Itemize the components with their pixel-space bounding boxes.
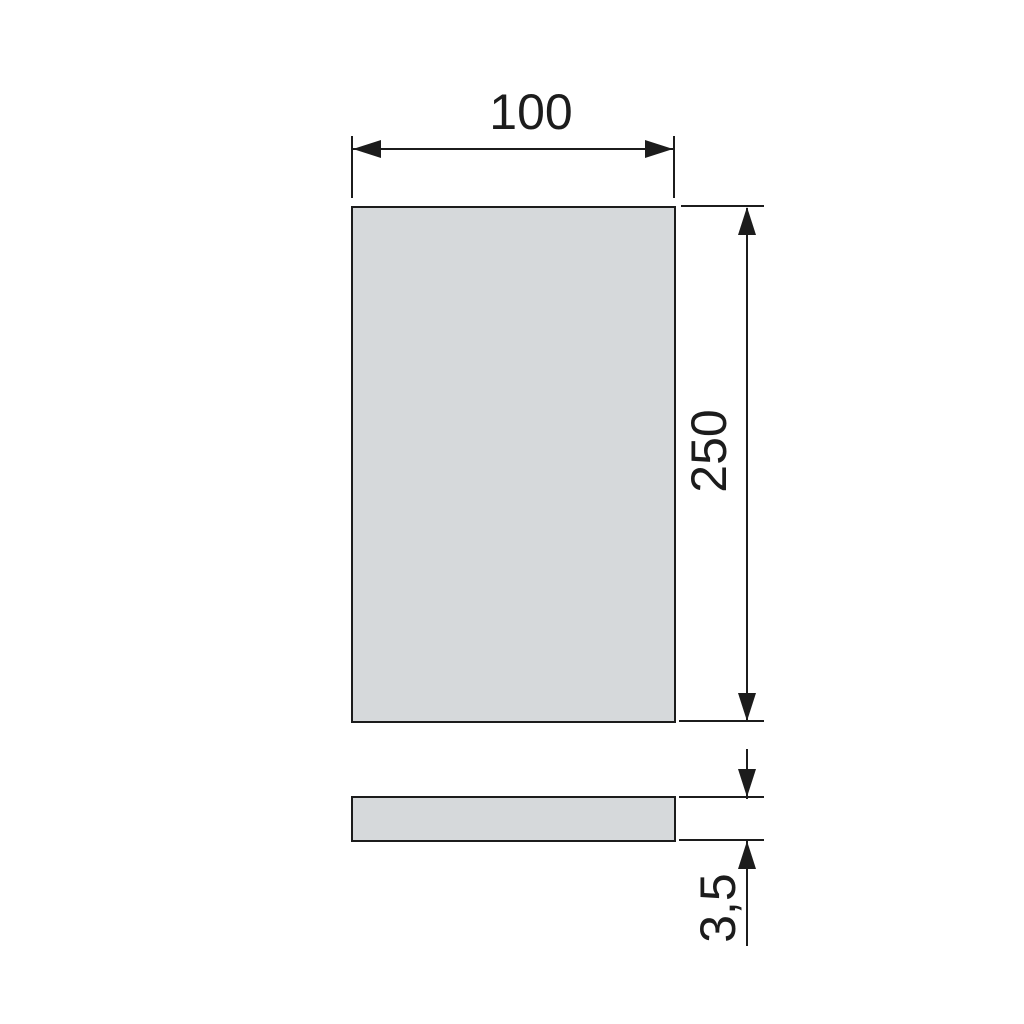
height-dimension-line [746, 208, 748, 720]
height-arrowhead-top-icon [738, 207, 756, 235]
width-arrowhead-left-icon [353, 140, 381, 158]
thickness-arrowhead-down-icon [738, 769, 756, 797]
width-extension-line-right [673, 136, 675, 198]
height-dimension-label: 250 [681, 391, 737, 511]
technical-drawing-canvas: 100 250 3,5 [0, 0, 1024, 1024]
height-arrowhead-bottom-icon [738, 693, 756, 721]
plate-side-view [351, 796, 676, 842]
plate-front-view [351, 206, 676, 723]
width-dimension-line [353, 148, 673, 150]
width-arrowhead-right-icon [645, 140, 673, 158]
width-dimension-label: 100 [369, 84, 693, 140]
thickness-dimension-label: 3,5 [690, 853, 746, 963]
